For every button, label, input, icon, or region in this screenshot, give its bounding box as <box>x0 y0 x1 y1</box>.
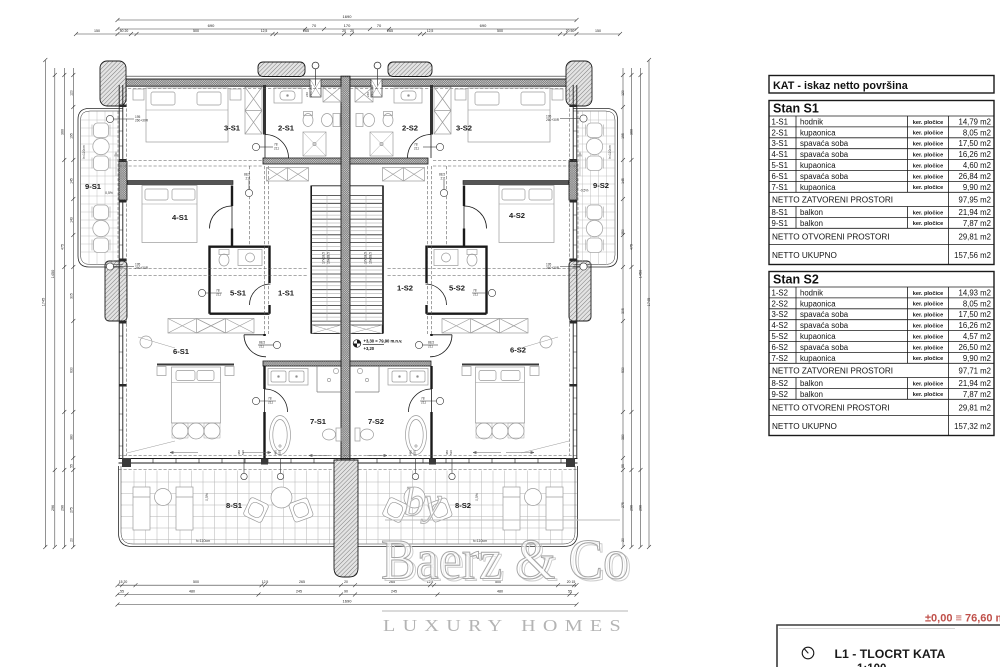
svg-text:3-S2: 3-S2 <box>772 310 788 319</box>
svg-text:296: 296 <box>630 505 634 511</box>
svg-text:1-S2: 1-S2 <box>397 284 413 293</box>
svg-text:balkon: balkon <box>800 379 823 388</box>
svg-text:4,60 m2: 4,60 m2 <box>963 161 991 170</box>
svg-text:spavaća soba: spavaća soba <box>800 321 849 330</box>
svg-text:spavaća soba: spavaća soba <box>800 310 849 319</box>
svg-text:20: 20 <box>350 29 354 33</box>
svg-text:305: 305 <box>69 293 73 299</box>
svg-text:296: 296 <box>639 505 643 511</box>
svg-text:195: 195 <box>69 133 73 139</box>
svg-text:690: 690 <box>208 23 215 28</box>
svg-text:9-S2: 9-S2 <box>772 390 788 399</box>
svg-text:211: 211 <box>216 292 221 296</box>
svg-text:NETTO UKUPNO: NETTO UKUPNO <box>772 422 837 431</box>
svg-text:14,93 m2: 14,93 m2 <box>958 288 991 297</box>
svg-text:ker. pločice: ker. pločice <box>913 313 943 319</box>
svg-text:480: 480 <box>189 590 195 594</box>
svg-text:55: 55 <box>621 464 625 468</box>
svg-text:16x28,5: 16x28,5 <box>369 252 373 264</box>
svg-text:6-S1: 6-S1 <box>772 172 788 181</box>
svg-text:6-S2: 6-S2 <box>772 343 788 352</box>
svg-text:ker. pločice: ker. pločice <box>913 210 943 216</box>
svg-text:157,56 m2: 157,56 m2 <box>954 251 991 260</box>
svg-text:120: 120 <box>621 90 625 96</box>
svg-text:NETTO UKUPNO: NETTO UKUPNO <box>772 251 837 260</box>
svg-text:305: 305 <box>621 308 625 314</box>
svg-text:260+30R: 260+30R <box>546 118 560 122</box>
svg-text:260+30R: 260+30R <box>135 266 149 270</box>
svg-text:21,94 m2: 21,94 m2 <box>958 208 991 217</box>
svg-text:20: 20 <box>344 580 348 584</box>
svg-text:20: 20 <box>69 538 73 542</box>
svg-text:balkon: balkon <box>800 208 823 217</box>
svg-text:475: 475 <box>630 244 634 250</box>
svg-text:8,05 m2: 8,05 m2 <box>963 128 991 137</box>
svg-text:9,90 m2: 9,90 m2 <box>963 354 991 363</box>
svg-text:8-S1: 8-S1 <box>772 208 788 217</box>
svg-text:balkon: balkon <box>800 219 823 228</box>
svg-text:296: 296 <box>60 505 64 511</box>
svg-text:1745: 1745 <box>647 298 651 306</box>
svg-text:1-S1: 1-S1 <box>772 117 788 126</box>
svg-text:Stan S1: Stan S1 <box>773 102 819 116</box>
svg-text:20: 20 <box>342 29 346 33</box>
svg-text:211: 211 <box>274 146 279 150</box>
svg-text:265: 265 <box>387 29 393 33</box>
svg-text:3-S1: 3-S1 <box>772 139 788 148</box>
svg-text:97,71 m2: 97,71 m2 <box>958 367 991 376</box>
svg-text:spavaća soba: spavaća soba <box>800 172 849 181</box>
svg-text:360: 360 <box>60 129 64 135</box>
svg-text:ker. pločice: ker. pločice <box>913 221 943 227</box>
svg-text:21,94 m2: 21,94 m2 <box>958 379 991 388</box>
svg-text:1690: 1690 <box>343 599 353 604</box>
svg-text:7-S2: 7-S2 <box>368 417 384 426</box>
svg-text:kupaonica: kupaonica <box>800 332 836 341</box>
svg-text:211: 211 <box>421 400 426 404</box>
svg-text:12,5: 12,5 <box>261 29 268 33</box>
svg-text:17x18,5: 17x18,5 <box>364 252 368 264</box>
svg-text:211: 211 <box>473 292 478 296</box>
svg-text:520: 520 <box>412 450 416 455</box>
svg-text:NETTO ZATVORENI PROSTORI: NETTO ZATVORENI PROSTORI <box>772 367 893 376</box>
svg-text:240+30R: 240+30R <box>370 84 374 97</box>
svg-text:7-S1: 7-S1 <box>772 183 788 192</box>
svg-text:150: 150 <box>595 29 601 33</box>
svg-text:ker. pločice: ker. pločice <box>913 153 943 159</box>
svg-text:6-S1: 6-S1 <box>173 347 190 356</box>
svg-text:5-S2: 5-S2 <box>772 332 788 341</box>
svg-text:8,05 m2: 8,05 m2 <box>963 299 991 308</box>
svg-text:±0,00 ≡ 76,60 m.n.v.: ±0,00 ≡ 76,60 m.n.v. <box>925 613 1000 625</box>
svg-text:250: 250 <box>621 229 625 235</box>
svg-text:143: 143 <box>69 217 73 223</box>
svg-text:h=110cm: h=110cm <box>82 145 86 159</box>
svg-text:70: 70 <box>377 23 382 28</box>
svg-text:-0,5%: -0,5% <box>580 189 589 193</box>
svg-text:3-S1: 3-S1 <box>224 124 241 133</box>
svg-text:520: 520 <box>449 450 453 455</box>
svg-text:55: 55 <box>120 590 124 594</box>
svg-text:Baerz & Co: Baerz & Co <box>381 529 629 592</box>
svg-text:150: 150 <box>94 29 100 33</box>
svg-text:15 20: 15 20 <box>119 580 128 584</box>
svg-text:ker. pločice: ker. pločice <box>913 131 943 137</box>
svg-text:7,87 m2: 7,87 m2 <box>963 390 991 399</box>
svg-text:8-S2: 8-S2 <box>772 379 788 388</box>
svg-text:8-S2: 8-S2 <box>455 501 471 510</box>
svg-text:17x18,5: 17x18,5 <box>322 252 326 264</box>
svg-text:KAT - iskaz netto površina: KAT - iskaz netto površina <box>773 80 909 92</box>
svg-text:9-S2: 9-S2 <box>593 181 609 190</box>
svg-text:16,26 m2: 16,26 m2 <box>958 150 991 159</box>
svg-text:29,81 m2: 29,81 m2 <box>958 404 991 413</box>
svg-text:195: 195 <box>621 133 625 139</box>
svg-text:520: 520 <box>241 450 245 455</box>
svg-text:3-S2: 3-S2 <box>456 124 472 133</box>
svg-text:1450: 1450 <box>639 270 643 278</box>
svg-text:380: 380 <box>69 434 73 440</box>
svg-text:ker. pločice: ker. pločice <box>913 381 943 387</box>
svg-text:50 20: 50 20 <box>120 29 129 33</box>
svg-text:26,50 m2: 26,50 m2 <box>958 343 991 352</box>
svg-text:0,5%: 0,5% <box>475 493 479 501</box>
svg-text:1-S1: 1-S1 <box>278 289 295 298</box>
svg-text:500: 500 <box>193 29 199 33</box>
svg-text:ker. pločice: ker. pločice <box>913 392 943 398</box>
svg-text:12,5: 12,5 <box>427 29 434 33</box>
svg-text:14,79 m2: 14,79 m2 <box>958 117 991 126</box>
svg-text:296: 296 <box>51 505 55 511</box>
svg-text:2-S2: 2-S2 <box>772 299 788 308</box>
svg-text:1745: 1745 <box>41 298 45 306</box>
svg-text:ker. pločice: ker. pločice <box>913 345 943 351</box>
svg-text:0,5%: 0,5% <box>205 493 209 501</box>
svg-text:2-S2: 2-S2 <box>402 124 418 133</box>
svg-text:LUXURY HOMES: LUXURY HOMES <box>383 616 628 635</box>
svg-text:4-S1: 4-S1 <box>172 213 189 222</box>
svg-text:7,87 m2: 7,87 m2 <box>963 219 991 228</box>
svg-text:211: 211 <box>441 177 446 181</box>
svg-text:kupaonica: kupaonica <box>800 161 836 170</box>
svg-text:16x28,5: 16x28,5 <box>327 252 331 264</box>
svg-text:spavaća soba: spavaća soba <box>800 150 849 159</box>
svg-text:211: 211 <box>268 400 273 404</box>
svg-text:spavaća soba: spavaća soba <box>800 139 849 148</box>
svg-text:2-S1: 2-S1 <box>278 124 295 133</box>
svg-text:360: 360 <box>630 129 634 135</box>
svg-text:97,95 m2: 97,95 m2 <box>958 196 991 205</box>
svg-text:NETTO ZATVORENI PROSTORI: NETTO ZATVORENI PROSTORI <box>772 196 893 205</box>
svg-text:29,81 m2: 29,81 m2 <box>958 233 991 242</box>
svg-text:ker. pločice: ker. pločice <box>913 324 943 330</box>
svg-text:ker. pločice: ker. pločice <box>913 356 943 362</box>
svg-text:530: 530 <box>621 367 625 373</box>
svg-text:20 50: 20 50 <box>566 29 575 33</box>
svg-text:+3,20: +3,20 <box>364 346 375 351</box>
svg-text:ker. pločice: ker. pločice <box>913 291 943 297</box>
svg-text:9,90 m2: 9,90 m2 <box>963 183 991 192</box>
svg-text:4-S2: 4-S2 <box>772 321 788 330</box>
svg-text:by: by <box>404 479 442 524</box>
svg-text:NETTO OTVORENI PROSTORI: NETTO OTVORENI PROSTORI <box>772 404 890 413</box>
svg-text:h=110cm: h=110cm <box>608 145 612 159</box>
svg-text:4-S1: 4-S1 <box>772 150 788 159</box>
svg-text:240+30R: 240+30R <box>309 84 313 97</box>
svg-text:spavaća soba: spavaća soba <box>800 343 849 352</box>
svg-text:500: 500 <box>193 580 199 584</box>
svg-text:475: 475 <box>60 244 64 250</box>
svg-text:275: 275 <box>69 507 73 513</box>
svg-text:kupaonica: kupaonica <box>800 299 836 308</box>
svg-text:5-S2: 5-S2 <box>449 284 465 293</box>
svg-text:500: 500 <box>497 29 503 33</box>
svg-text:12,5: 12,5 <box>262 580 269 584</box>
svg-text:630: 630 <box>69 367 73 373</box>
svg-text:ker. pločice: ker. pločice <box>913 163 943 169</box>
svg-text:70: 70 <box>312 23 317 28</box>
svg-text:211: 211 <box>428 344 433 348</box>
svg-text:+3,30 = 79,90 m.n.v.: +3,30 = 79,90 m.n.v. <box>364 339 403 344</box>
svg-text:NETTO OTVORENI PROSTORI: NETTO OTVORENI PROSTORI <box>772 233 890 242</box>
svg-text:5-S1: 5-S1 <box>230 289 247 298</box>
svg-text:hodnik: hodnik <box>800 288 823 297</box>
svg-text:265: 265 <box>299 580 305 584</box>
svg-text:ker. pločice: ker. pločice <box>913 174 943 180</box>
svg-text:5-S1: 5-S1 <box>772 161 788 170</box>
svg-text:275: 275 <box>621 502 625 508</box>
svg-text:1:100: 1:100 <box>857 663 886 667</box>
svg-text:Stan S2: Stan S2 <box>773 273 819 287</box>
svg-text:245: 245 <box>296 590 302 594</box>
svg-text:16,26 m2: 16,26 m2 <box>958 321 991 330</box>
svg-text:260+30R: 260+30R <box>546 266 560 270</box>
svg-text:17,50 m2: 17,50 m2 <box>958 310 991 319</box>
svg-text:ker. pločice: ker. pločice <box>913 185 943 191</box>
svg-text:1-S2: 1-S2 <box>772 288 788 297</box>
svg-text:265: 265 <box>303 29 309 33</box>
svg-text:7-S2: 7-S2 <box>772 354 788 363</box>
svg-text:kupaonica: kupaonica <box>800 354 836 363</box>
svg-text:ker. pločice: ker. pločice <box>913 334 943 340</box>
svg-text:211: 211 <box>414 146 419 150</box>
svg-text:1450: 1450 <box>51 270 55 278</box>
svg-text:9-S1: 9-S1 <box>85 182 102 191</box>
svg-text:211: 211 <box>246 177 251 181</box>
svg-text:690: 690 <box>480 23 487 28</box>
svg-text:170: 170 <box>344 23 351 28</box>
svg-text:260+30R: 260+30R <box>135 119 149 123</box>
svg-text:h=110cm: h=110cm <box>196 539 211 543</box>
svg-text:hodnik: hodnik <box>800 117 823 126</box>
svg-text:520: 520 <box>277 450 281 455</box>
svg-text:ker. pločice: ker. pločice <box>913 302 943 308</box>
svg-text:145: 145 <box>69 178 73 184</box>
svg-text:4-S2: 4-S2 <box>509 211 525 220</box>
svg-text:120: 120 <box>69 90 73 96</box>
svg-text:kupaonica: kupaonica <box>800 183 836 192</box>
svg-text:1690: 1690 <box>343 14 353 19</box>
svg-text:0,5%: 0,5% <box>105 191 113 195</box>
svg-text:55: 55 <box>69 464 73 468</box>
svg-text:90: 90 <box>344 590 348 594</box>
svg-text:145: 145 <box>621 178 625 184</box>
svg-text:L1 - TLOCRT KATA: L1 - TLOCRT KATA <box>835 647 946 661</box>
svg-text:17,50 m2: 17,50 m2 <box>958 139 991 148</box>
svg-text:balkon: balkon <box>800 390 823 399</box>
svg-text:26,84 m2: 26,84 m2 <box>958 172 991 181</box>
svg-text:8-S1: 8-S1 <box>226 501 243 510</box>
svg-text:157,32 m2: 157,32 m2 <box>954 422 991 431</box>
svg-text:kupaonica: kupaonica <box>800 128 836 137</box>
svg-text:9-S1: 9-S1 <box>772 219 788 228</box>
svg-text:ker. pločice: ker. pločice <box>913 120 943 126</box>
svg-text:380: 380 <box>621 434 625 440</box>
svg-text:ker. pločice: ker. pločice <box>913 142 943 148</box>
svg-text:6-S2: 6-S2 <box>510 346 526 355</box>
svg-text:2-S1: 2-S1 <box>772 128 788 137</box>
svg-text:7-S1: 7-S1 <box>310 417 327 426</box>
svg-text:4,57 m2: 4,57 m2 <box>963 332 991 341</box>
svg-text:211: 211 <box>259 344 264 348</box>
